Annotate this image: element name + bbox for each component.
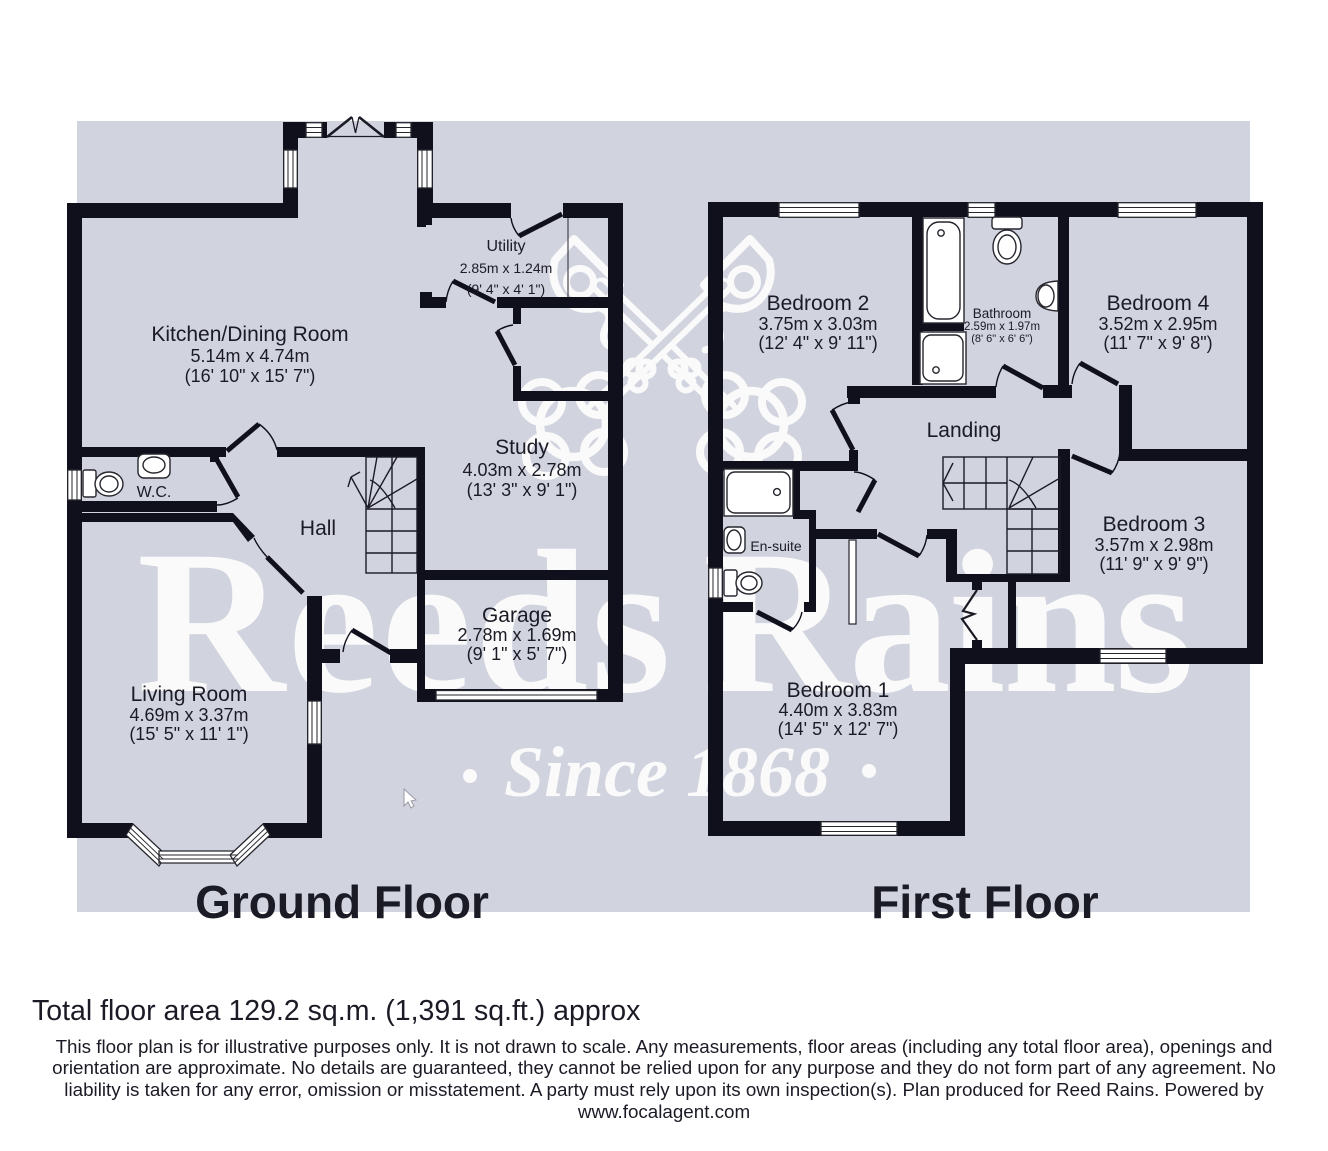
svg-text:5.14m x 4.74m: 5.14m x 4.74m xyxy=(190,346,309,366)
svg-text:Since 1868: Since 1868 xyxy=(504,732,830,812)
svg-text:Utility: Utility xyxy=(486,238,525,255)
svg-text:Bedroom 4: Bedroom 4 xyxy=(1107,292,1210,315)
svg-text:(16' 10" x 15' 7"): (16' 10" x 15' 7") xyxy=(185,366,316,386)
svg-text:Kitchen/Dining Room: Kitchen/Dining Room xyxy=(151,323,348,346)
svg-text:First Floor: First Floor xyxy=(871,876,1099,928)
svg-text:Study: Study xyxy=(495,436,549,459)
svg-text:Total floor area 129.2 sq.m. (: Total floor area 129.2 sq.m. (1,391 sq.f… xyxy=(32,995,640,1027)
svg-text:(9' 1" x 5' 7"): (9' 1" x 5' 7") xyxy=(467,644,568,664)
svg-text:(13' 3" x 9' 1"): (13' 3" x 9' 1") xyxy=(467,480,578,500)
svg-text:W.C.: W.C. xyxy=(137,484,172,501)
svg-text:4.69m x 3.37m: 4.69m x 3.37m xyxy=(129,705,248,725)
svg-text:orientation are approximate. N: orientation are approximate. No details … xyxy=(52,1057,1276,1078)
svg-text:(11' 7" x 9' 8"): (11' 7" x 9' 8") xyxy=(1103,333,1212,353)
svg-text:liability is taken for any err: liability is taken for any error, omissi… xyxy=(64,1079,1264,1100)
svg-text:Hall: Hall xyxy=(300,517,336,540)
svg-text:3.57m x 2.98m: 3.57m x 2.98m xyxy=(1094,535,1213,555)
svg-text:3.75m x 3.03m: 3.75m x 3.03m xyxy=(758,314,877,334)
svg-text:Garage: Garage xyxy=(482,604,552,627)
svg-text:Bathroom: Bathroom xyxy=(973,306,1032,321)
svg-text:Bedroom 3: Bedroom 3 xyxy=(1103,513,1206,536)
svg-text:(15' 5" x 11' 1"): (15' 5" x 11' 1") xyxy=(129,724,248,744)
svg-text:4.03m x 2.78m: 4.03m x 2.78m xyxy=(462,460,581,480)
svg-text:(8' 6" x 6' 6"): (8' 6" x 6' 6") xyxy=(971,333,1033,345)
svg-text:(14' 5" x 12' 7"): (14' 5" x 12' 7") xyxy=(778,719,899,739)
svg-text:4.40m x 3.83m: 4.40m x 3.83m xyxy=(778,700,897,720)
svg-text:2.78m x 1.69m: 2.78m x 1.69m xyxy=(457,625,576,645)
svg-text:Living Room: Living Room xyxy=(131,683,248,706)
svg-text:www.focalagent.com: www.focalagent.com xyxy=(577,1101,750,1122)
svg-text:Bedroom 2: Bedroom 2 xyxy=(767,292,870,315)
svg-text:2.59m x 1.97m: 2.59m x 1.97m xyxy=(964,321,1040,333)
svg-text:This floor plan is for illustr: This floor plan is for illustrative purp… xyxy=(56,1036,1273,1057)
svg-text:2.85m x 1.24m: 2.85m x 1.24m xyxy=(460,260,553,276)
svg-text:En-suite: En-suite xyxy=(750,538,802,554)
svg-text:(9' 4" x 4' 1"): (9' 4" x 4' 1") xyxy=(467,281,545,297)
svg-text:(12' 4" x 9' 11"): (12' 4" x 9' 11") xyxy=(758,333,877,353)
svg-text:(11' 9" x 9' 9"): (11' 9" x 9' 9") xyxy=(1099,554,1208,574)
svg-text:Landing: Landing xyxy=(927,419,1002,442)
svg-text:3.52m x 2.95m: 3.52m x 2.95m xyxy=(1098,314,1217,334)
svg-text:Ground Floor: Ground Floor xyxy=(195,876,489,928)
svg-text:Bedroom 1: Bedroom 1 xyxy=(787,679,890,702)
